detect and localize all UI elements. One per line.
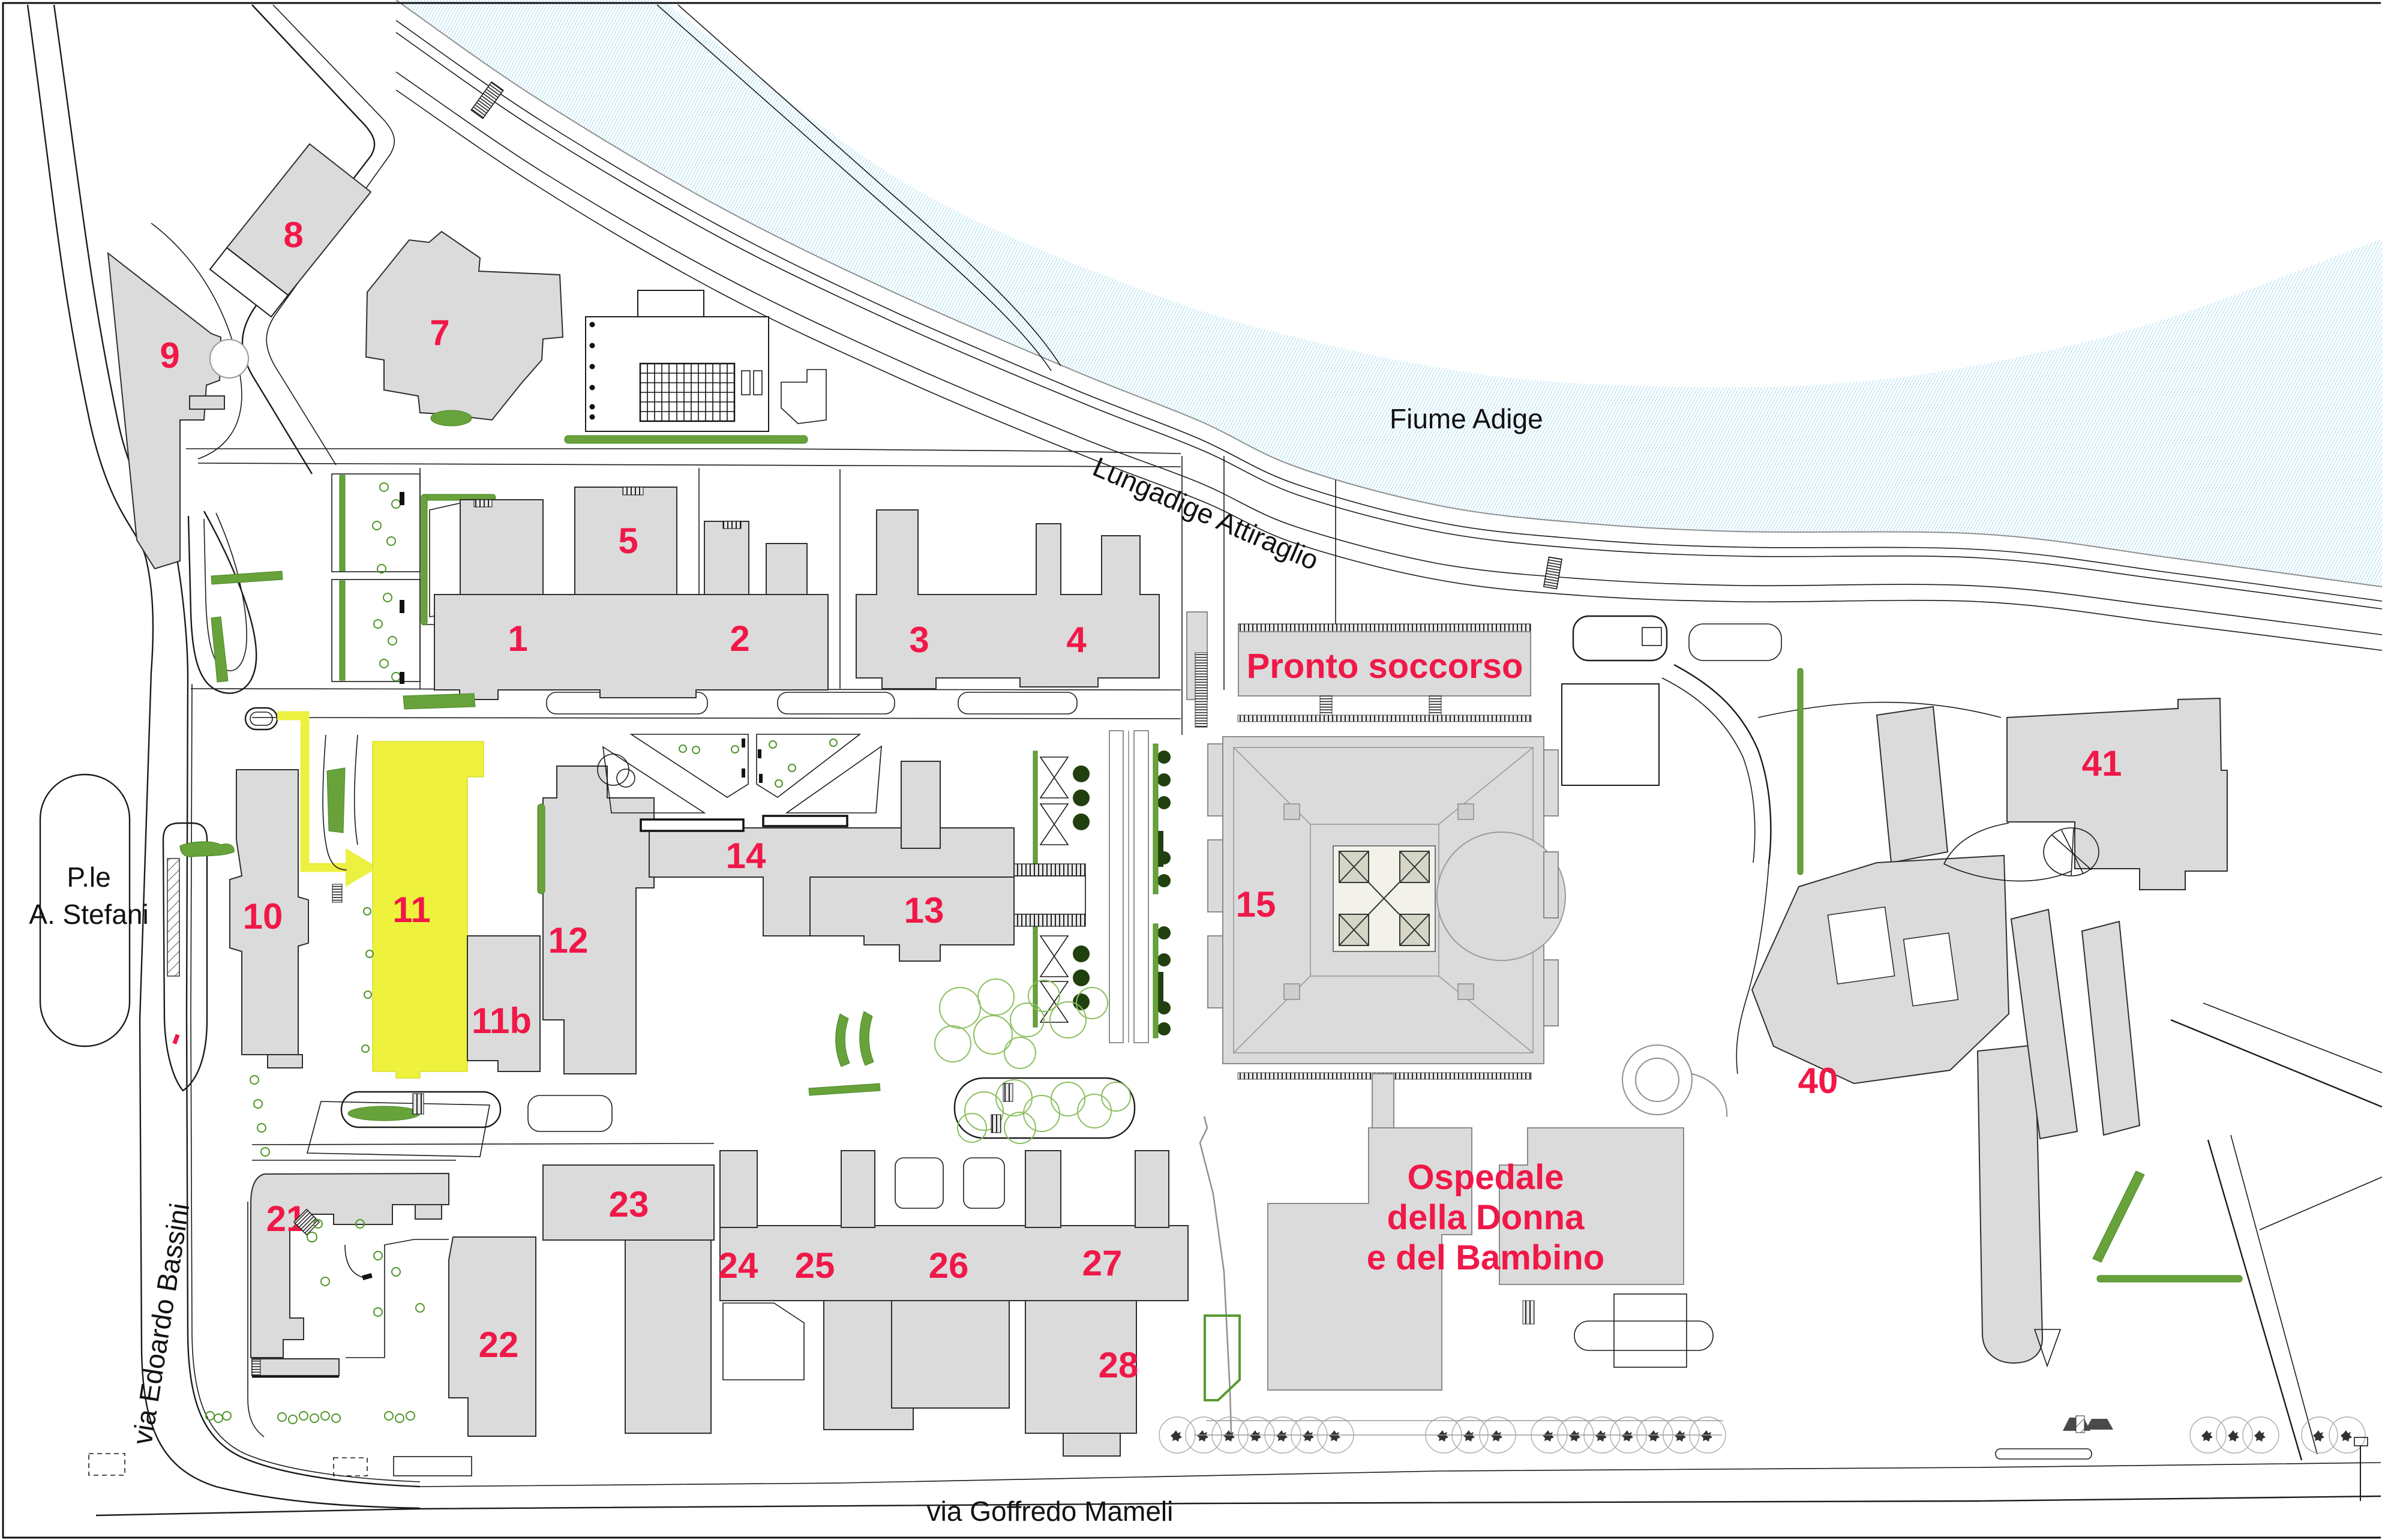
svg-text:della Donna: della Donna [1387,1198,1585,1237]
svg-text:4: 4 [1066,620,1087,660]
svg-text:23: 23 [609,1184,649,1224]
svg-text:22: 22 [479,1325,519,1365]
svg-text:2: 2 [730,619,749,659]
svg-text:12: 12 [548,920,589,960]
svg-text:40: 40 [1798,1061,1838,1101]
svg-text:11b: 11b [472,1001,532,1041]
svg-text:7: 7 [430,313,449,353]
svg-text:10: 10 [243,896,283,936]
svg-text:28: 28 [1099,1345,1139,1385]
svg-text:26: 26 [929,1245,969,1286]
svg-text:27: 27 [1082,1243,1123,1283]
svg-text:A. Stefani: A. Stefani [29,899,148,930]
svg-text:3: 3 [909,620,929,660]
svg-text:41: 41 [2082,743,2122,783]
svg-text:Ospedale: Ospedale [1407,1158,1564,1197]
svg-text:24: 24 [718,1245,758,1286]
svg-text:e del Bambino: e del Bambino [1367,1238,1604,1277]
svg-text:8: 8 [283,215,303,255]
svg-text:9: 9 [160,335,179,376]
svg-text:25: 25 [795,1245,835,1286]
svg-text:13: 13 [904,890,944,930]
svg-text:Fiume Adige: Fiume Adige [1390,403,1543,434]
svg-text:1: 1 [508,619,527,659]
svg-text:14: 14 [726,836,766,876]
svg-text:P.le: P.le [67,861,110,893]
svg-text:via Goffredo Mameli: via Goffredo Mameli [927,1496,1174,1527]
svg-text:11: 11 [392,890,430,930]
svg-text:Pronto soccorso: Pronto soccorso [1247,647,1523,686]
svg-text:5: 5 [618,521,638,561]
svg-text:15: 15 [1236,884,1276,924]
